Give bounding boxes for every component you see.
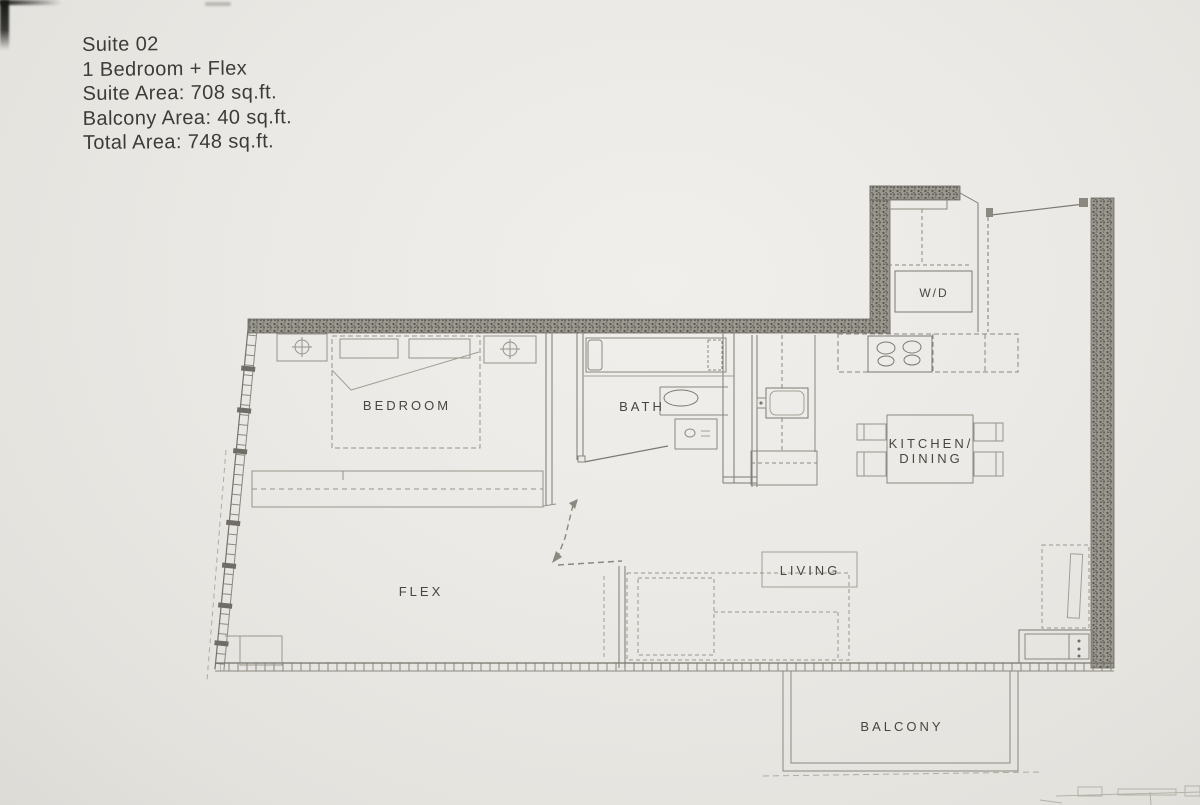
lamp-symbol-right — [500, 339, 520, 359]
kitchen-lower-cabinet — [751, 451, 817, 485]
bath-sink-symbol — [664, 390, 698, 406]
kitchen-back-counter — [838, 334, 1018, 372]
wall-left-window — [212, 319, 260, 671]
kitchen-fixtures — [751, 334, 1018, 485]
bathtub-symbol — [586, 338, 726, 372]
wall-wd-top — [870, 186, 960, 200]
lamp-symbol-left — [292, 337, 312, 357]
floor-plan-photo: Suite 02 1 Bedroom + Flex Suite Area: 70… — [0, 0, 1200, 805]
living-label: LIVING — [780, 563, 841, 578]
entry-door — [986, 198, 1088, 217]
toilet-symbol — [675, 419, 717, 449]
floor-plan-svg: W/D BEDROOM — [0, 0, 1200, 805]
tv-console-symbol — [1042, 545, 1089, 628]
wall-top — [248, 319, 890, 333]
flex-partition — [543, 499, 622, 660]
wd-label: W/D — [919, 286, 948, 300]
bedroom-furniture — [252, 334, 543, 507]
bed-symbol — [332, 336, 480, 448]
sofa-chaise — [638, 578, 714, 655]
bath-label: BATH — [619, 399, 665, 414]
wd-shelf — [890, 199, 947, 209]
adjacent-plan-fragment — [1040, 786, 1200, 805]
interior-walls — [546, 193, 988, 668]
balcony-label: BALCONY — [860, 719, 943, 734]
pillow-right — [409, 339, 470, 358]
bath-door — [578, 446, 668, 462]
kitchen-dining-label-line1: KITCHEN/ — [889, 436, 974, 451]
flex-label: FLEX — [399, 584, 444, 599]
pillow-left — [340, 339, 398, 358]
bedroom-label: BEDROOM — [363, 398, 451, 413]
sofa-symbol — [627, 573, 849, 660]
fan-coil-unit — [1019, 630, 1093, 663]
wall-bottom-window — [215, 636, 1114, 671]
wall-wd-left — [870, 186, 890, 333]
corner-column — [240, 636, 282, 665]
wall-right — [1091, 198, 1114, 668]
structural-walls — [248, 186, 1114, 668]
stove-symbol — [868, 336, 932, 372]
kitchen-dining-label-line2: DINING — [899, 451, 963, 466]
